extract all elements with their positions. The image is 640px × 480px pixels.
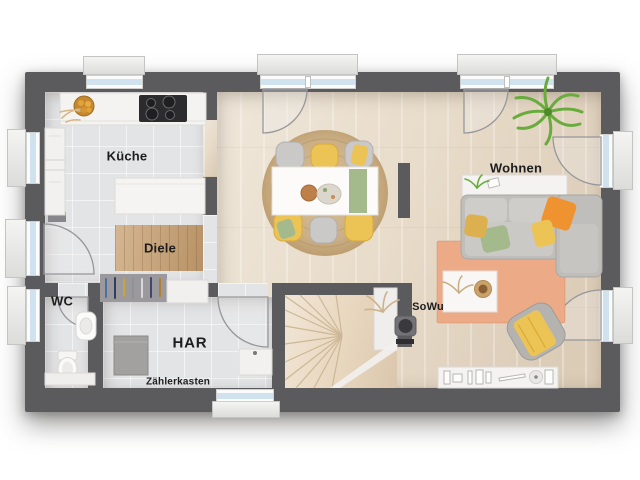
wall-wc-right [88,297,103,388]
window-glazing [216,389,274,402]
window-sill [212,401,280,418]
floor-plan-canvas: Küche Diele WC HAR Zählerkasten SoWu Woh… [0,0,640,480]
floor-opening-har-door [218,283,268,297]
door-glazing [599,290,613,342]
wall-stair-top [272,283,412,295]
room-label-diele: Diele [144,241,176,256]
floor-stairwell [285,295,397,388]
window-glazing [86,75,143,89]
door-sill [257,54,358,75]
door-mullion [504,76,510,88]
wall-diele-har [88,283,218,297]
window-sill [7,286,26,345]
door-sill [613,287,633,344]
room-label-wc: WC [51,294,73,309]
wall-kitchen-right-upper [203,92,217,120]
door-mullion [305,76,311,88]
wall-entry-return-stub [48,212,66,222]
room-label-zaehlerkasten: Zählerkasten [146,377,210,388]
floor-tile-wc [45,297,88,388]
door-sill [5,219,26,278]
wall-stair-left [272,283,285,388]
floor-opening-diele-hall [203,215,217,283]
door-glazing [26,221,40,276]
wall-dining-living-stub [398,163,410,218]
window-sill [83,56,145,75]
door-sill [613,131,633,190]
wall-kitchen-right-lower [203,177,217,215]
window-glazing [26,132,40,184]
door-sill [457,54,557,75]
floor-opening-kitchen-dining [203,120,217,177]
room-label-wohnen: Wohnen [490,161,542,176]
room-label-kueche: Küche [107,149,148,164]
room-label-sowu: SoWu [412,301,444,313]
window-glazing [26,289,40,342]
room-label-har: HAR [173,335,208,352]
window-sill [7,129,26,187]
wall-stair-right [397,283,412,347]
door-glazing [599,134,613,188]
